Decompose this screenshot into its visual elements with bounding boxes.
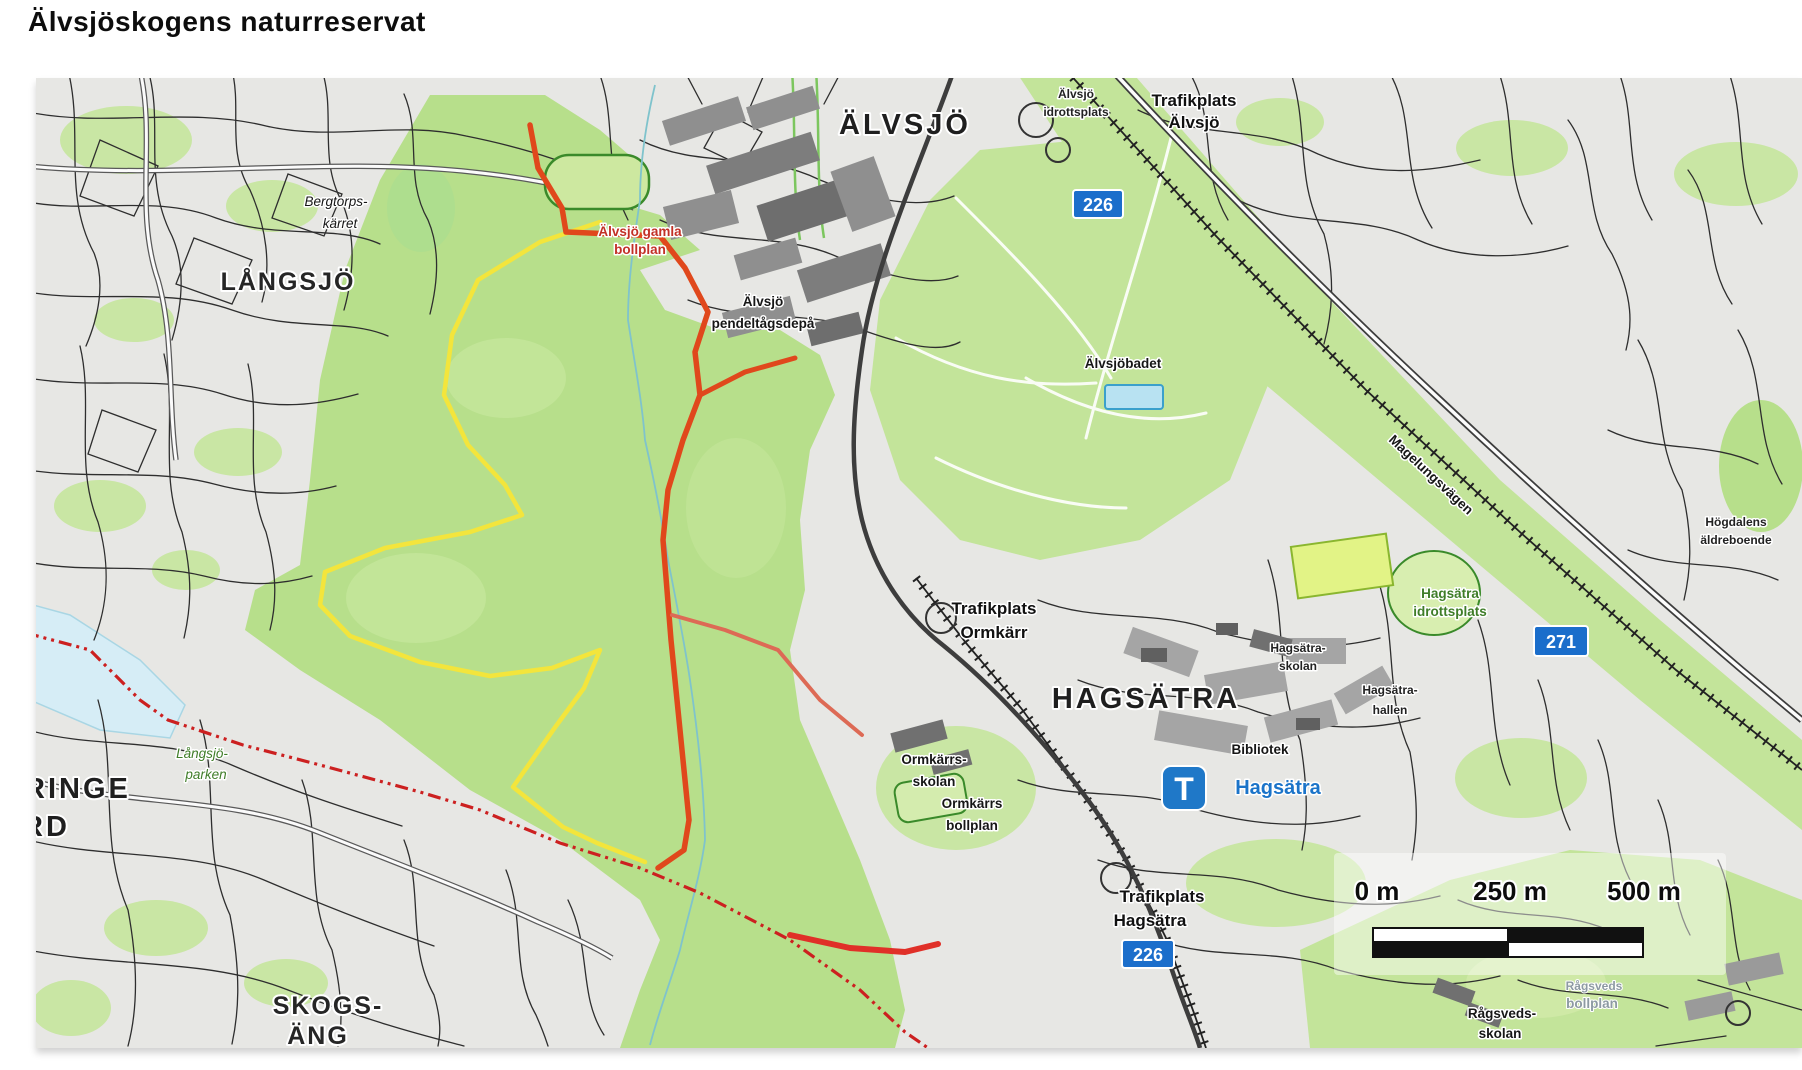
scale-label-500: 500 m	[1607, 876, 1681, 906]
label-trafikplats-alvsjo: Trafikplats	[1151, 91, 1236, 110]
label-langsjoparken2: parken	[184, 767, 226, 782]
label-trafikplats-alvsjo2: Älvsjö	[1168, 113, 1219, 132]
label-ormkarr-skolan2: skolan	[913, 774, 956, 789]
label-ormkarr-bollplan2: bollplan	[946, 818, 998, 833]
label-hogdalen2: äldreboende	[1700, 533, 1772, 547]
scale-label-250: 250 m	[1473, 876, 1547, 906]
label-langsjoparken: Långsjö-	[176, 746, 228, 761]
label-alvsjo-idrottsplats: Älvsjö	[1058, 86, 1094, 101]
label-ragsved-skolan2: skolan	[1479, 1026, 1522, 1041]
label-juringe2: RD	[36, 811, 70, 843]
label-hagsatra-hallen: Hagsätra-	[1362, 683, 1417, 697]
label-ragsved-skolan: Rågsveds-	[1468, 1006, 1536, 1021]
road-sign-226-top: 226	[1073, 190, 1123, 218]
label-bergtorpskarret2: kärret	[323, 216, 359, 231]
svg-text:271: 271	[1546, 632, 1576, 652]
label-bibliotek: Bibliotek	[1231, 742, 1288, 757]
label-ragsved-bollplan: Rågsveds	[1566, 979, 1623, 993]
label-skogsang: SKOGS-	[273, 992, 384, 1020]
svg-text:226: 226	[1133, 945, 1163, 965]
map-canvas: ÄLVSJÖ Älvsjö idrottsplats Trafikplats Ä…	[36, 78, 1802, 1048]
label-metro-hagsatra: Hagsätra	[1235, 777, 1321, 799]
label-ormkarr-skolan: Ormkärrs-	[901, 752, 966, 767]
metro-icon: T	[1162, 766, 1206, 810]
label-hagsatra-skolan: Hagsätra-	[1270, 641, 1325, 655]
label-trafikplats-hagsatra2: Hagsätra	[1114, 911, 1187, 930]
svg-text:T: T	[1174, 771, 1194, 807]
green-bergtorpskarret	[387, 164, 455, 252]
label-pendeltagsdepa: Älvsjö	[743, 294, 784, 309]
label-hagsatra-skolan2: skolan	[1279, 659, 1317, 673]
label-trafikplats-ormkarr2: Ormkärr	[960, 623, 1027, 642]
label-skogsang2: ÄNG	[287, 1022, 349, 1048]
page: Älvsjöskogens naturreservat	[0, 0, 1802, 1070]
label-hagsatra-hallen2: hallen	[1373, 703, 1408, 717]
scale-bar: 0 m 250 m 500 m	[1334, 853, 1726, 975]
pool-alvsjobadet	[1105, 385, 1163, 409]
label-alvsjobadet: Älvsjöbadet	[1085, 356, 1162, 371]
label-trafikplats-hagsatra: Trafikplats	[1119, 887, 1204, 906]
road-sign-271: 271	[1534, 626, 1588, 656]
label-hogdalen: Högdalens	[1705, 515, 1767, 529]
label-ragsved-bollplan2: bollplan	[1566, 996, 1618, 1011]
label-hagsatra-district: HAGSÄTRA	[1052, 682, 1240, 715]
label-bergtorpskarret: Bergtorps-	[304, 194, 368, 209]
label-gamla-bollplan2: bollplan	[614, 242, 666, 257]
label-alvsjo-district: ÄLVSJÖ	[839, 108, 971, 141]
label-langsjo-district: LÅNGSJÖ	[221, 267, 356, 296]
label-alvsjo-idrottsplats2: idrottsplats	[1043, 105, 1109, 119]
label-hagsatra-idrottsplats2: idrottsplats	[1413, 604, 1487, 619]
svg-text:226: 226	[1083, 195, 1113, 215]
label-juringe: RINGE	[36, 773, 131, 805]
label-trafikplats-ormkarr: Trafikplats	[951, 599, 1036, 618]
label-pendeltagsdepa2: pendeltågsdepå	[712, 316, 815, 331]
label-gamla-bollplan: Älvsjö gamla	[598, 224, 682, 239]
label-hagsatra-idrottsplats: Hagsätra	[1421, 586, 1479, 601]
label-ormkarr-bollplan: Ormkärrs	[942, 796, 1003, 811]
road-sign-226-bottom: 226	[1122, 940, 1174, 968]
scale-label-0: 0 m	[1355, 876, 1400, 906]
page-title: Älvsjöskogens naturreservat	[28, 6, 426, 38]
